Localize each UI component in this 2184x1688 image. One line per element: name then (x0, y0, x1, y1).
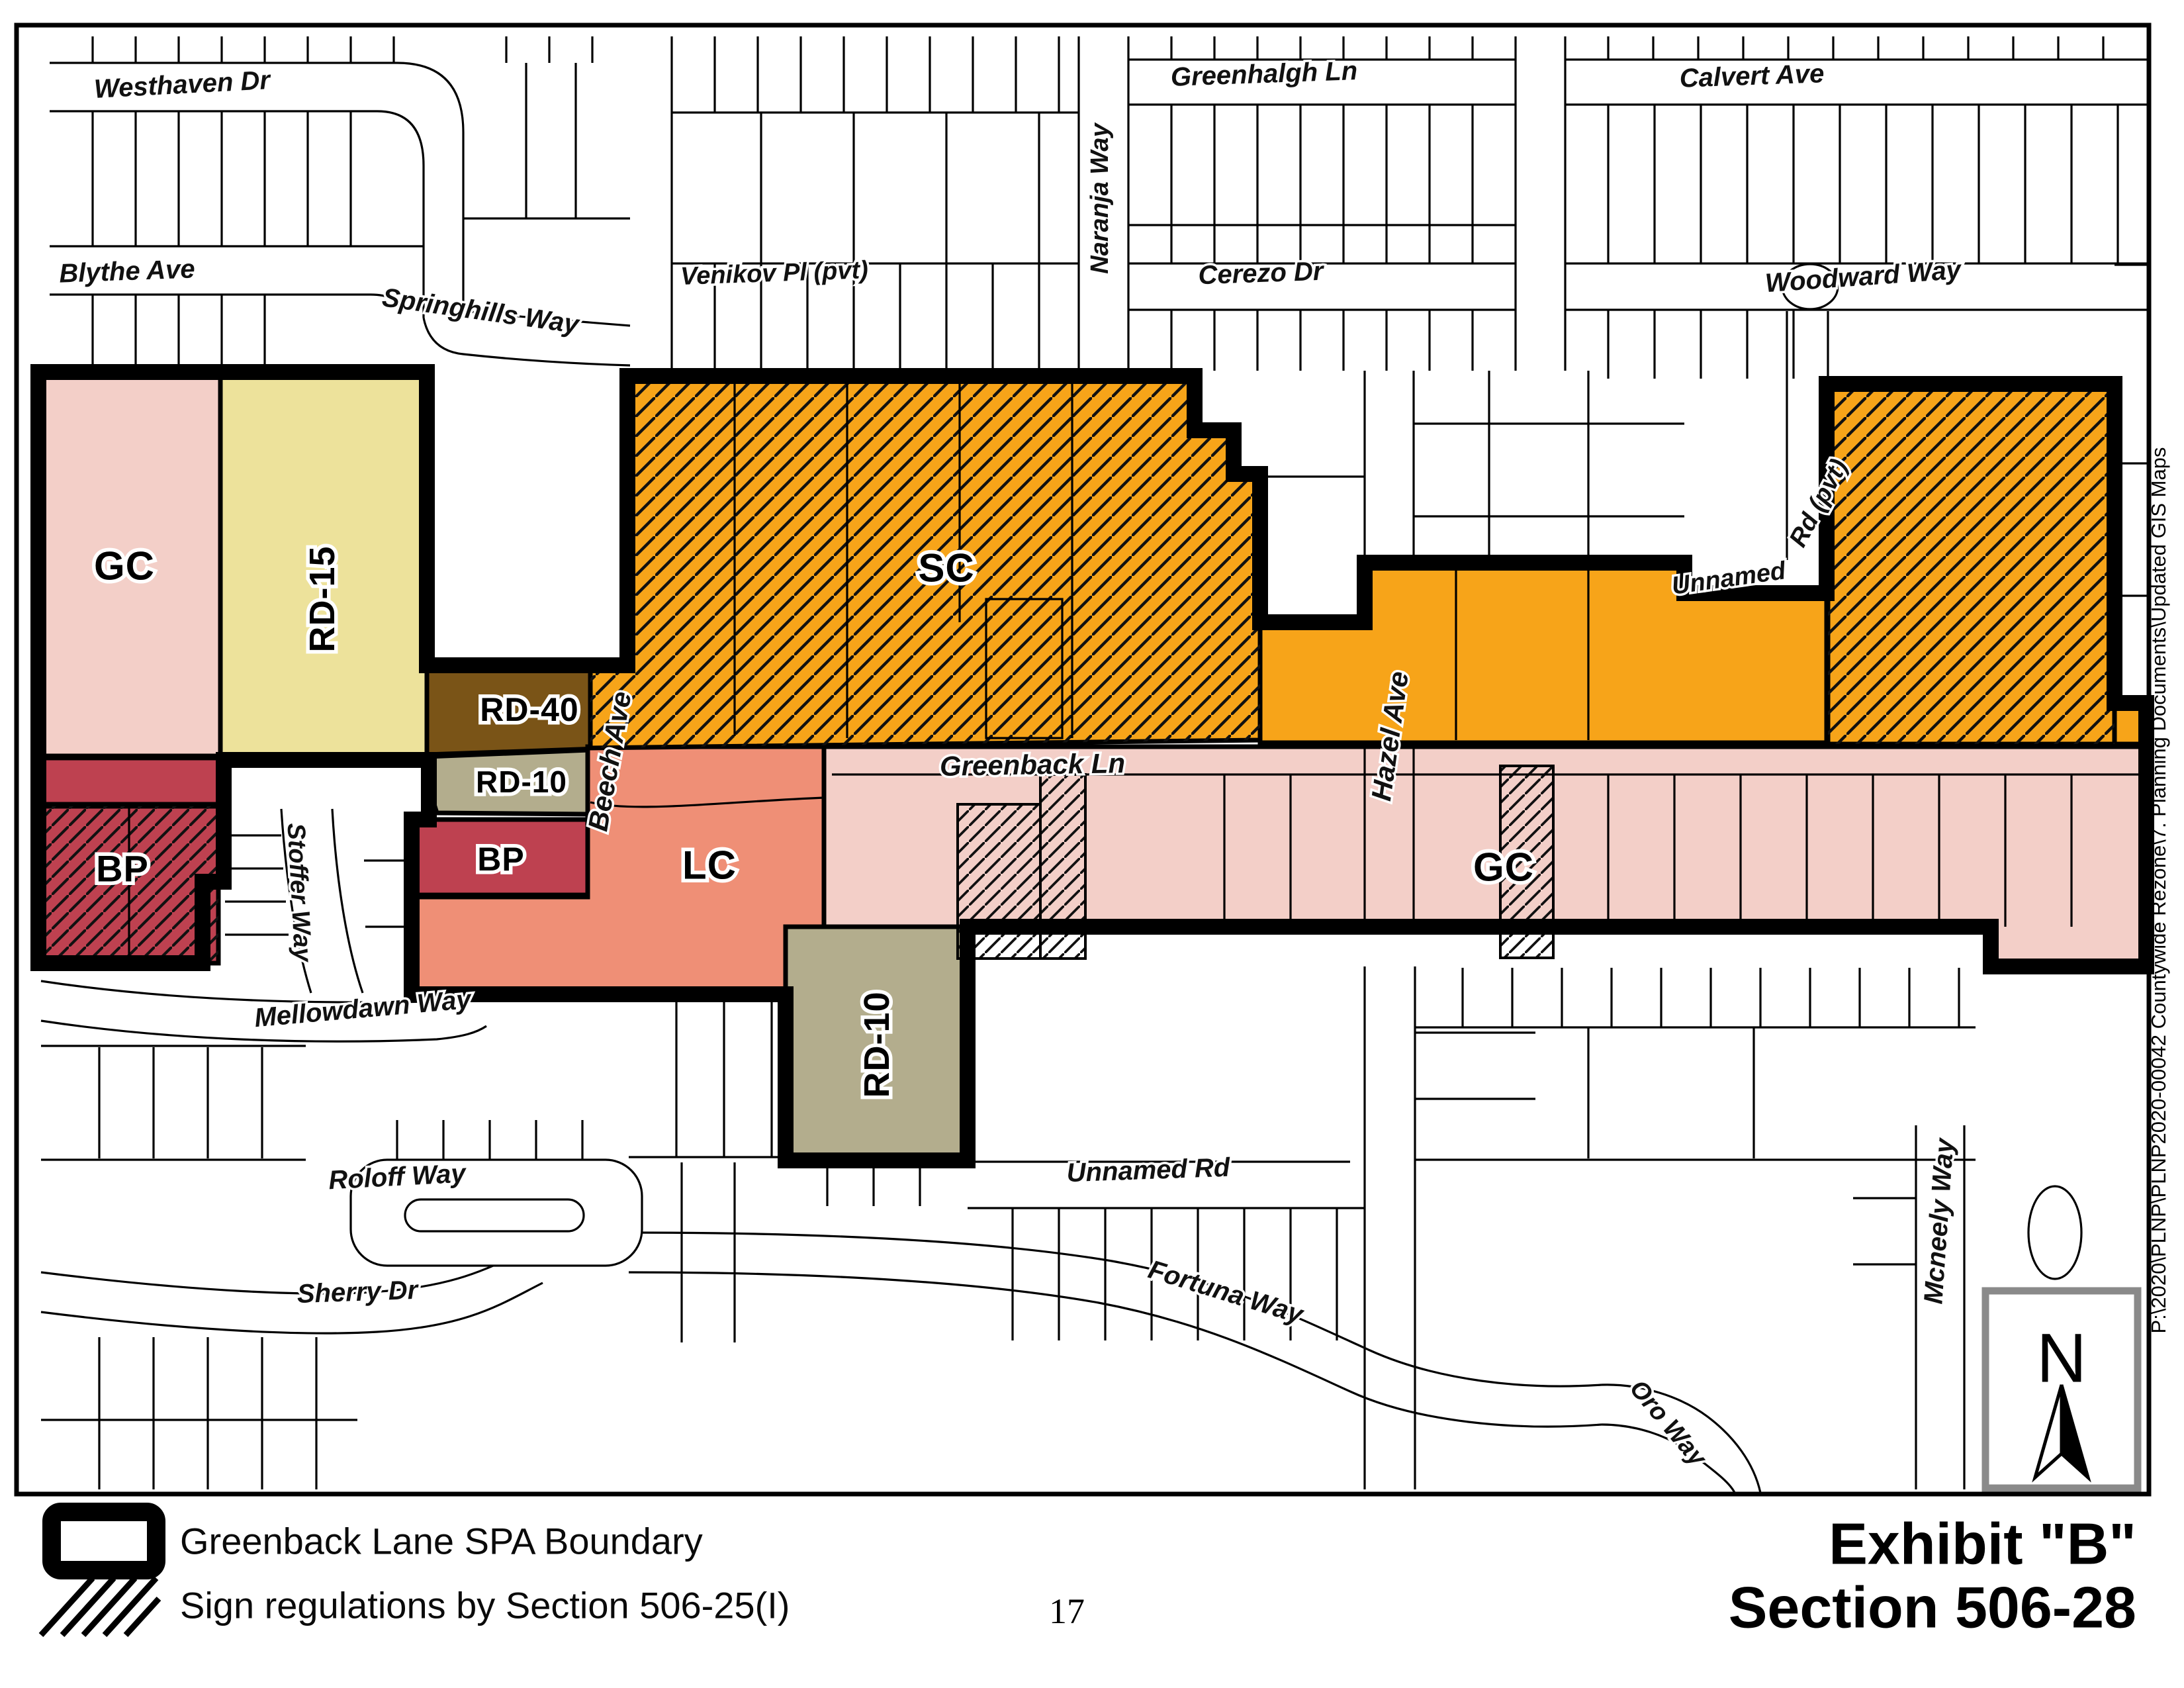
hatch-sc-east (1828, 384, 2115, 744)
zoning-map: N Westhaven DrBlythe AveSpringhills WayV… (0, 0, 2184, 1688)
street-label-calvert-ave: Calvert Ave (1679, 59, 1825, 93)
legend-spa-label: Greenback Lane SPA Boundary (180, 1521, 703, 1562)
zone-label-sc: SC (918, 546, 974, 590)
zone-label-rd40: RD-40 (480, 691, 578, 728)
exhibit-title-line2: Section 506-28 (1729, 1575, 2136, 1640)
parcel-lines-venikov (672, 36, 1079, 371)
street-label-cerezo-dr: Cerezo Dr (1198, 257, 1326, 291)
legend-hatch-swatch (41, 1578, 159, 1635)
zone-label-lc: LC (682, 843, 737, 888)
mcneely-culdesac (2028, 1186, 2081, 1279)
exhibit-title-line1: Exhibit "B" (1829, 1511, 2136, 1577)
legend-spa-swatch (52, 1512, 156, 1570)
street-label-blythe-ave: Blythe Ave (59, 254, 196, 288)
zone-label-rd15: RD-15 (302, 545, 342, 652)
zone-label-rd10-south: RD-10 (857, 991, 897, 1098)
zone-label-gc-west: GC (94, 544, 155, 588)
north-arrow: N (1985, 1291, 2138, 1488)
street-label-venikov-pl: Venikov Pl (pvt) (680, 256, 869, 291)
page: { "map": { "zone_labels": [ {"id":"zone-… (0, 0, 2184, 1688)
street-label-oro-way: Oro Way (1624, 1375, 1712, 1473)
file-path-side-text: P:\2020\PLNP\PLNP2020-00042 Countywide R… (2147, 447, 2170, 1334)
legend-hatch-label: Sign regulations by Section 506-25(I) (180, 1585, 790, 1626)
parcel-lines-mid (1261, 311, 1828, 561)
zone-label-rd10-beech: RD-10 (476, 765, 567, 799)
street-label-sherry-dr: Sherry Dr (296, 1276, 420, 1309)
page-number: 17 (1049, 1591, 1085, 1631)
parcel-lines-s-mid (629, 1000, 1602, 1427)
street-label-unnamed-rd: Unnamed Rd (1066, 1153, 1232, 1188)
roloff-loop-inner (405, 1199, 584, 1231)
zone-label-gc-east: GC (1473, 845, 1534, 890)
legend: Greenback Lane SPA Boundary Sign regulat… (41, 1512, 790, 1635)
street-label-greenhalgh-ln: Greenhalgh Ln (1170, 56, 1358, 92)
street-label-stoffer-way: Stoffer Way (282, 822, 317, 964)
street-label-springhills-way: Springhills Way (381, 283, 582, 339)
street-label-greenback-ln: Greenback Ln (940, 747, 1126, 782)
zone-label-bp-mid: BP (477, 841, 524, 878)
street-label-naranja-way: Naranja Way (1086, 122, 1114, 273)
zone-label-bp-west: BP (96, 848, 149, 890)
street-label-mcneely-way: Mcneely Way (1919, 1137, 1959, 1305)
street-label-westhaven-dr: Westhaven Dr (93, 66, 272, 104)
zone-bp-band (38, 758, 221, 804)
